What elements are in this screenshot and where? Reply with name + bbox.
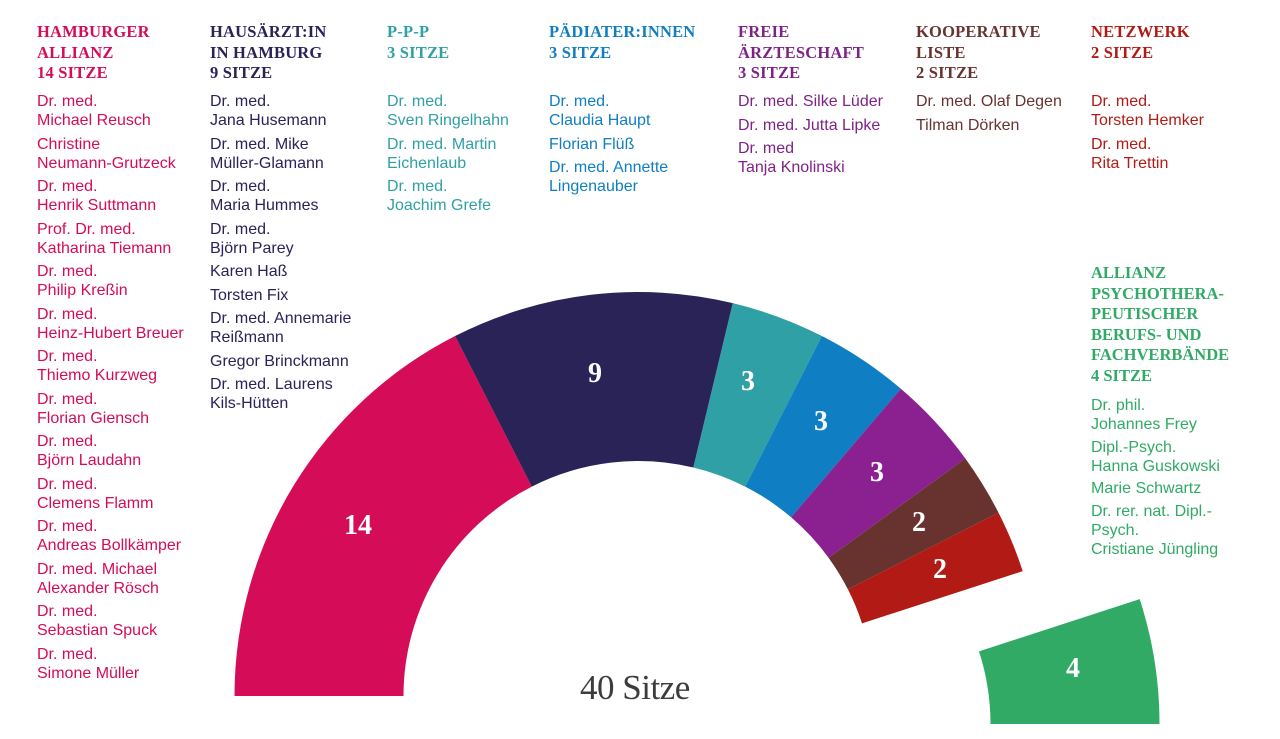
- svg-text:9: 9: [588, 358, 602, 389]
- svg-text:3: 3: [814, 406, 828, 437]
- svg-text:2: 2: [933, 554, 947, 585]
- svg-text:14: 14: [344, 510, 372, 541]
- svg-text:2: 2: [912, 507, 926, 538]
- svg-text:3: 3: [741, 366, 755, 397]
- svg-text:3: 3: [870, 457, 884, 488]
- svg-text:4: 4: [1066, 653, 1080, 684]
